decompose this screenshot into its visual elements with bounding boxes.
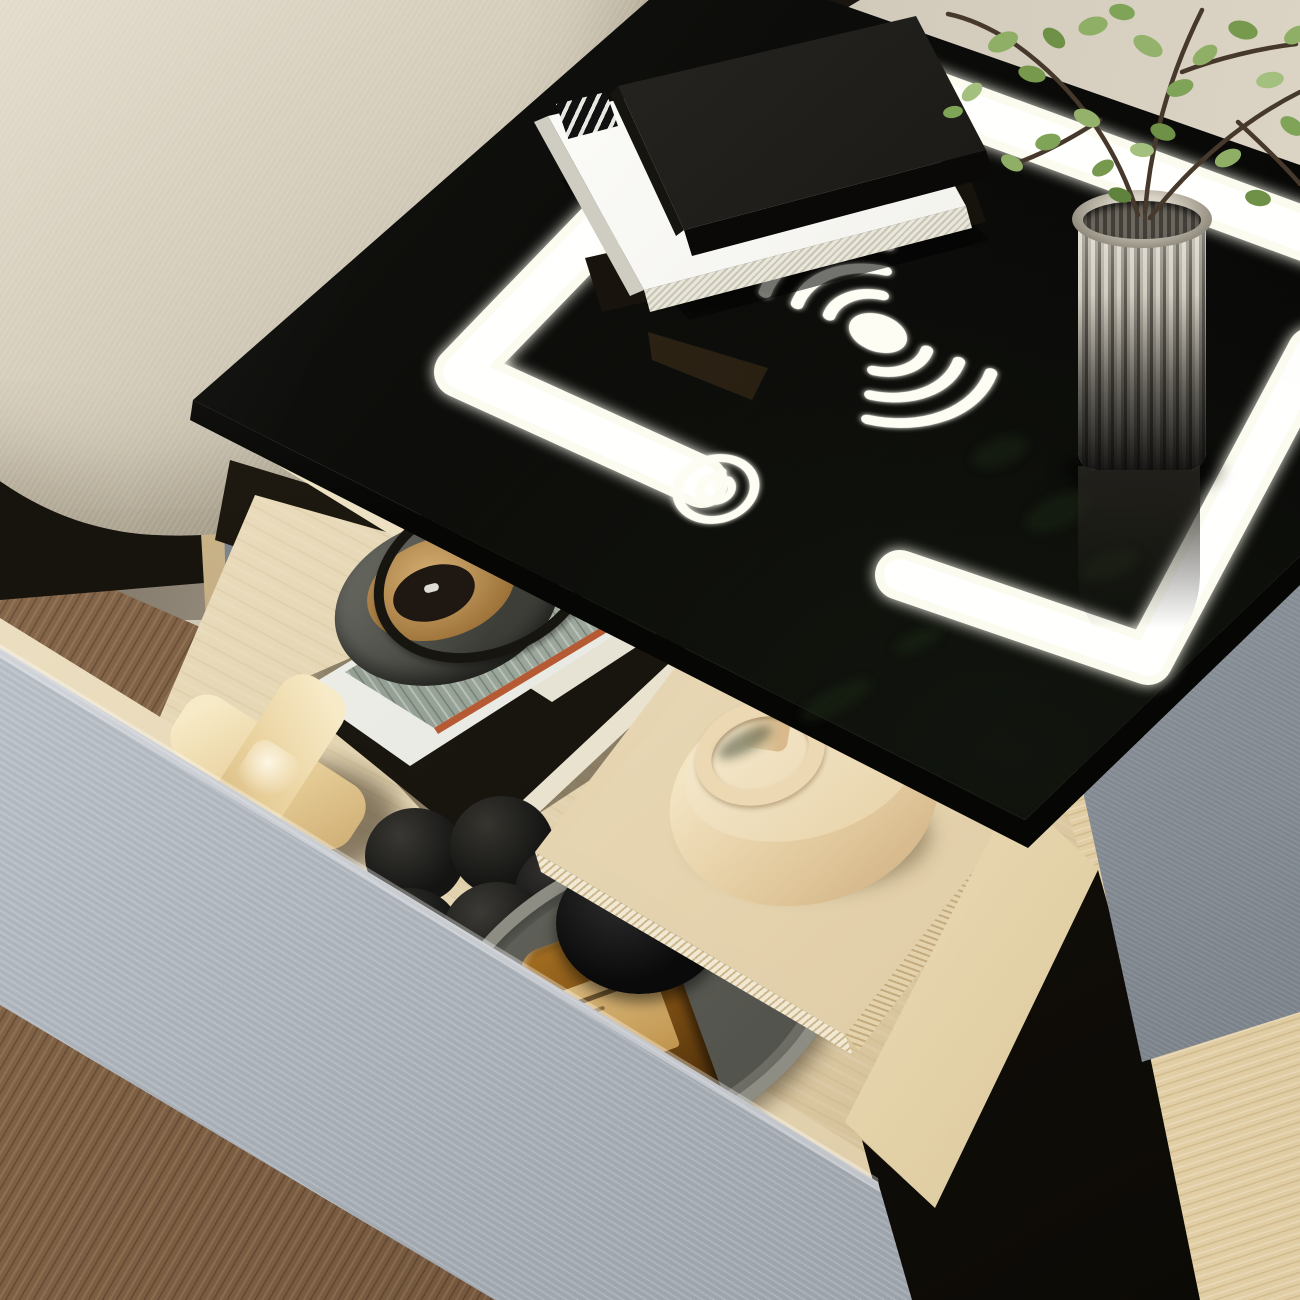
scene-smart-nightstand: [0, 0, 1300, 1300]
plant-layer: [0, 0, 1300, 1300]
